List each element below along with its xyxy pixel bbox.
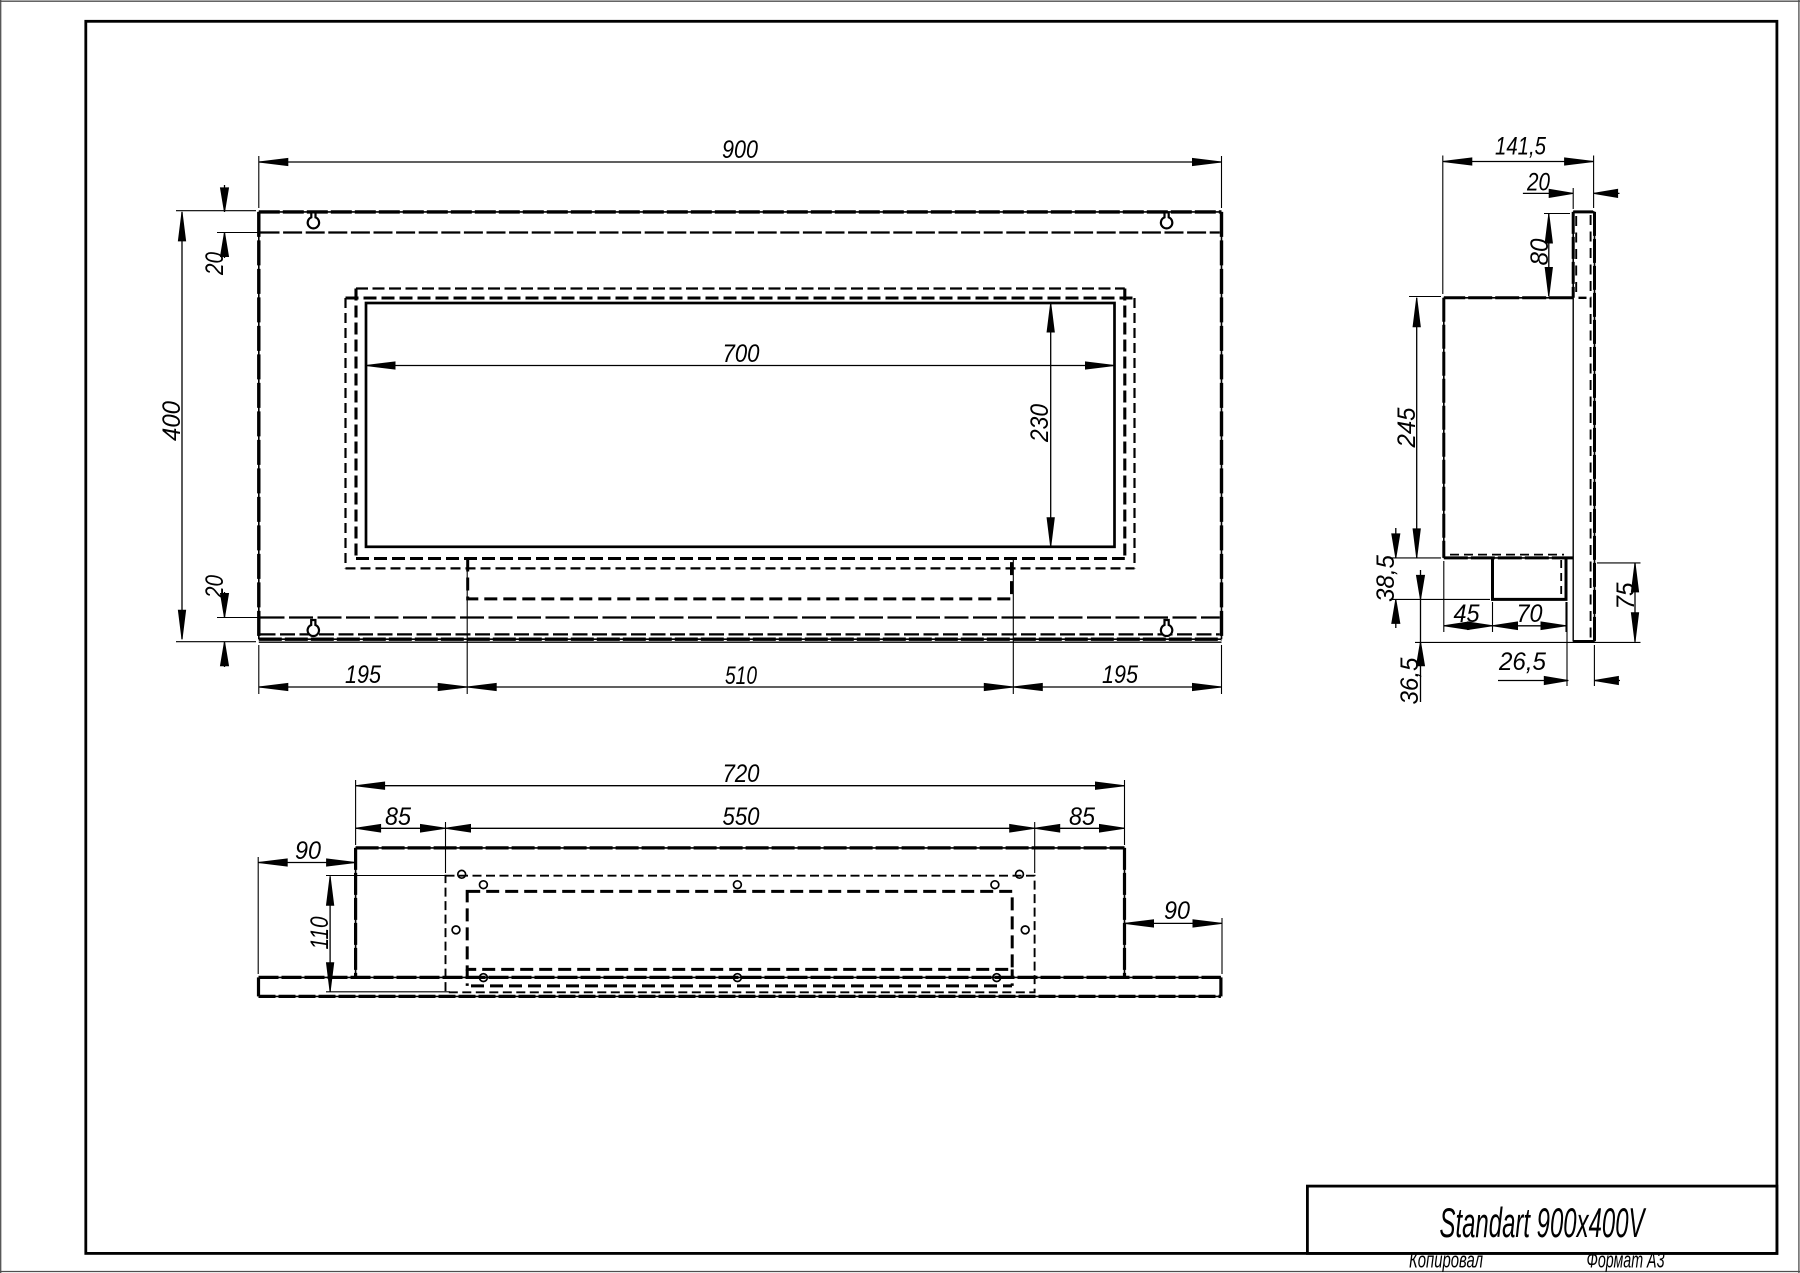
svg-text:90: 90 [1164, 897, 1190, 925]
svg-text:400: 400 [158, 401, 186, 441]
svg-text:85: 85 [1069, 803, 1095, 831]
svg-text:550: 550 [723, 803, 760, 831]
svg-text:195: 195 [1102, 661, 1138, 689]
svg-text:75: 75 [1612, 582, 1640, 609]
svg-text:141,5: 141,5 [1495, 133, 1546, 161]
svg-text:510: 510 [725, 662, 757, 690]
svg-text:720: 720 [723, 760, 760, 788]
svg-text:230: 230 [1026, 404, 1054, 443]
svg-text:26,5: 26,5 [1498, 648, 1546, 676]
svg-text:45: 45 [1454, 600, 1480, 628]
svg-text:Формат А3: Формат А3 [1587, 1248, 1665, 1273]
svg-text:36,5: 36,5 [1396, 657, 1424, 704]
svg-text:Standart 900x400V: Standart 900x400V [1440, 1199, 1647, 1246]
svg-text:900: 900 [722, 136, 758, 164]
svg-text:195: 195 [345, 661, 381, 689]
svg-text:20: 20 [1526, 169, 1550, 197]
svg-text:20: 20 [201, 575, 229, 599]
svg-text:80: 80 [1526, 238, 1554, 265]
svg-text:110: 110 [306, 916, 334, 949]
svg-text:38,5: 38,5 [1372, 555, 1400, 602]
svg-text:700: 700 [723, 340, 760, 368]
svg-text:20: 20 [201, 252, 229, 276]
svg-text:245: 245 [1393, 407, 1421, 448]
svg-text:70: 70 [1517, 600, 1543, 628]
svg-text:Копировал: Копировал [1409, 1248, 1483, 1273]
svg-text:90: 90 [295, 837, 321, 865]
svg-text:85: 85 [385, 803, 411, 831]
